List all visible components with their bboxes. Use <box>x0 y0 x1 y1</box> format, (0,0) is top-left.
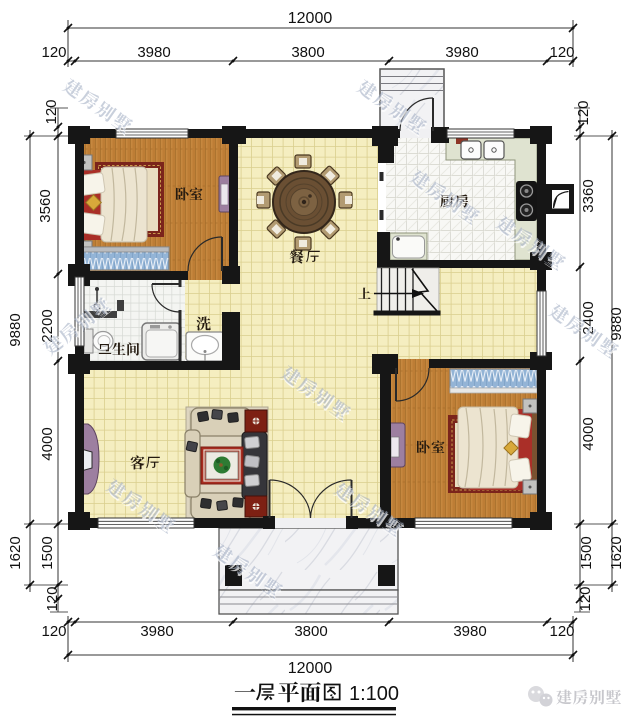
svg-text:3980: 3980 <box>140 623 173 640</box>
svg-text:1:100: 1:100 <box>349 683 399 705</box>
svg-text:12000: 12000 <box>288 660 333 677</box>
svg-text:4000: 4000 <box>39 427 56 460</box>
svg-text:9880: 9880 <box>608 307 625 340</box>
svg-text:1620: 1620 <box>7 536 24 569</box>
svg-text:4000: 4000 <box>580 417 597 450</box>
svg-text:3800: 3800 <box>291 44 324 61</box>
svg-text:120: 120 <box>41 44 66 61</box>
svg-text:120: 120 <box>43 99 60 124</box>
svg-text:12000: 12000 <box>288 10 333 27</box>
svg-text:3980: 3980 <box>453 623 486 640</box>
svg-text:120: 120 <box>575 100 592 125</box>
svg-text:120: 120 <box>549 44 574 61</box>
svg-text:3980: 3980 <box>137 44 170 61</box>
svg-text:3980: 3980 <box>445 44 478 61</box>
svg-text:3360: 3360 <box>580 179 597 212</box>
svg-text:1500: 1500 <box>39 536 56 569</box>
svg-text:3800: 3800 <box>294 623 327 640</box>
svg-text:120: 120 <box>549 623 574 640</box>
svg-text:3560: 3560 <box>37 189 54 222</box>
svg-text:1500: 1500 <box>578 536 595 569</box>
svg-text:1620: 1620 <box>608 536 625 569</box>
svg-text:9880: 9880 <box>7 313 24 346</box>
svg-text:120: 120 <box>41 623 66 640</box>
